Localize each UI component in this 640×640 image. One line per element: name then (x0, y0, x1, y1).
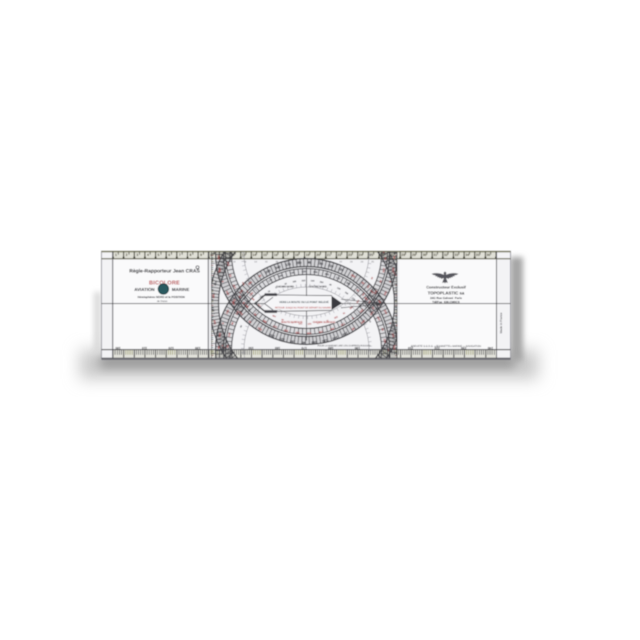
svg-text:320: 320 (307, 332, 312, 335)
svg-text:130: 130 (313, 271, 318, 274)
svg-text:AVIATION: AVIATION (134, 287, 154, 292)
svg-text:CHEMIN SURFACE: CHEMIN SURFACE (313, 321, 336, 324)
svg-text:5: 5 (158, 253, 160, 257)
svg-text:MARINE: MARINE (172, 287, 190, 292)
svg-text:10: 10 (212, 261, 215, 264)
svg-text:160: 160 (275, 346, 280, 350)
svg-text:POUR LA MARINE LIRE LES CHIFFR: POUR LA MARINE LIRE LES CHIFFRES ROUGES (317, 345, 370, 348)
svg-text:100: 100 (115, 346, 120, 350)
svg-text:6: 6 (168, 253, 170, 257)
svg-text:25: 25 (369, 253, 373, 257)
svg-text:240: 240 (488, 346, 493, 350)
svg-text:120: 120 (168, 346, 173, 350)
svg-text:100: 100 (311, 280, 315, 283)
svg-text:32: 32 (444, 253, 448, 257)
svg-text:36: 36 (486, 253, 490, 257)
svg-text:150: 150 (248, 346, 253, 350)
svg-text:23: 23 (350, 261, 353, 264)
svg-text:17: 17 (284, 253, 288, 257)
svg-text:60: 60 (384, 257, 387, 260)
svg-text:CHEMIN NORD: CHEMIN NORD (276, 286, 294, 289)
svg-text:18: 18 (295, 253, 299, 257)
svg-text:28: 28 (401, 253, 405, 257)
svg-text:BREVETÉ S.G.D.G. «JEANNETTE» M: BREVETÉ S.G.D.G. «JEANNETTE» MARINE — NA… (411, 345, 481, 348)
svg-text:320: 320 (302, 270, 307, 273)
svg-text:20: 20 (316, 253, 320, 257)
svg-text:40: 40 (301, 341, 305, 345)
svg-text:19: 19 (306, 253, 310, 257)
svg-text:9: 9 (200, 253, 202, 257)
svg-text:VERS LA ROUTE OU LE POINT RELE: VERS LA ROUTE OU LE POINT RELEVÉ (279, 301, 329, 304)
svg-text:15: 15 (263, 253, 267, 257)
svg-text:22: 22 (339, 261, 342, 264)
svg-text:320: 320 (393, 345, 396, 350)
svg-text:130: 130 (295, 331, 300, 334)
svg-text:260: 260 (311, 340, 317, 344)
svg-text:ROUTE SURFACE: ROUTE SURFACE (281, 321, 302, 324)
svg-text:260: 260 (296, 261, 302, 265)
svg-text:220: 220 (383, 338, 386, 343)
svg-text:25: 25 (371, 261, 374, 264)
svg-text:3: 3 (136, 253, 138, 257)
svg-text:Constructeur Exclusif: Constructeur Exclusif (426, 286, 466, 290)
svg-text:15: 15 (265, 261, 268, 264)
svg-text:RETOUR JUSQU’AU POINT DE DÉPAR: RETOUR JUSQU’AU POINT DE DÉPART DU NAVIR… (275, 306, 331, 309)
svg-text:14: 14 (252, 253, 256, 257)
svg-text:14: 14 (254, 261, 257, 264)
svg-text:40: 40 (308, 261, 312, 265)
svg-text:170: 170 (301, 346, 306, 350)
svg-text:310: 310 (308, 322, 312, 325)
svg-text:4: 4 (147, 253, 149, 257)
svg-text:110: 110 (142, 346, 147, 350)
svg-text:310: 310 (302, 279, 306, 282)
svg-text:7: 7 (179, 253, 181, 257)
svg-text:130: 130 (195, 346, 200, 350)
svg-text:Tél/Fax 636.CM0CS: Tél/Fax 636.CM0CS (432, 300, 459, 303)
svg-text:185: 185 (212, 294, 215, 299)
svg-text:8: 8 (190, 253, 192, 257)
svg-text:16: 16 (274, 253, 278, 257)
svg-text:1: 1 (115, 253, 117, 257)
svg-text:40: 40 (393, 256, 396, 259)
svg-text:320: 320 (217, 255, 220, 260)
svg-text:177: 177 (212, 307, 215, 312)
svg-text:40: 40 (217, 346, 220, 349)
svg-text:24G Rue Galvani Paris: 24G Rue Galvani Paris (430, 297, 462, 300)
svg-text:2: 2 (126, 253, 128, 257)
svg-text:30: 30 (423, 253, 427, 257)
svg-text:21: 21 (327, 253, 331, 257)
svg-text:33: 33 (455, 253, 459, 257)
svg-text:Règle-Rapporteur Jean CRAS: Règle-Rapporteur Jean CRAS (129, 269, 200, 275)
svg-text:CENTRE NORD: CENTRE NORD (308, 286, 326, 289)
svg-text:Made in France: Made in France (499, 312, 502, 333)
svg-text:60: 60 (226, 345, 229, 348)
svg-text:12: 12 (233, 261, 236, 264)
svg-text:35: 35 (476, 253, 480, 257)
svg-text:34: 34 (465, 253, 469, 257)
svg-text:23: 23 (348, 253, 352, 257)
svg-text:24: 24 (361, 261, 364, 264)
svg-text:de l’Avion: de l’Avion (157, 300, 167, 303)
svg-text:13: 13 (242, 253, 246, 257)
svg-text:TOPOPLASTIC sa: TOPOPLASTIC sa (428, 291, 465, 296)
svg-text:220: 220 (227, 262, 230, 267)
svg-text:22: 22 (338, 253, 342, 257)
svg-text:29: 29 (412, 253, 416, 257)
svg-text:24: 24 (359, 253, 363, 257)
svg-text:Hémisphères NORD et la POSITIO: Hémisphères NORD et la POSITION (138, 296, 185, 299)
svg-text:31: 31 (433, 253, 437, 257)
